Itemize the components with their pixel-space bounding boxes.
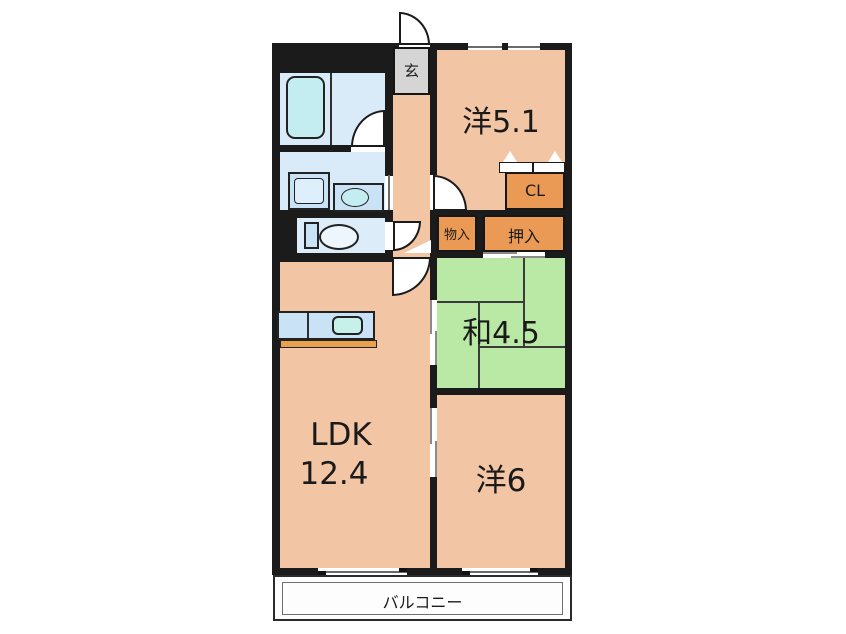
window-top-2: [508, 43, 540, 50]
window-yo6-balcony: [462, 568, 538, 575]
window-ldk-balcony: [318, 568, 407, 575]
fusuma-oshiire: [483, 252, 545, 258]
vanity-basin: [341, 188, 369, 207]
washroom-door-gap: [385, 176, 393, 210]
bathroom-divider: [330, 73, 332, 145]
genkan-label: 玄: [393, 60, 430, 81]
kitchen-counter-divider: [307, 313, 309, 338]
window-top-1: [468, 43, 502, 50]
yo51-label: 洋5.1: [437, 97, 565, 141]
oshiire-label: 押入: [483, 223, 565, 247]
storage-label: 物入: [437, 224, 477, 243]
kitchen-sink: [332, 316, 363, 335]
kitchen-base-cabinet: [280, 340, 377, 348]
folding-door-track: [499, 162, 565, 173]
ldk-label: LDK: [283, 417, 399, 453]
floor-plan: 玄 CL 物入 押入 バルコニー 洋5.1 和4.5 LDK 12.4 洋6: [0, 0, 846, 634]
ldk-room: [280, 262, 430, 568]
window-tick: [399, 568, 407, 572]
window-tick: [530, 568, 538, 572]
toilet-tank: [304, 222, 319, 249]
toilet-door-gap: [385, 222, 393, 250]
wall-right: [565, 43, 572, 575]
wa45-label: 和4.5: [437, 308, 565, 352]
toilet-bowl: [319, 224, 359, 250]
yo6-label: 洋6: [437, 455, 565, 500]
wall-left: [272, 43, 280, 575]
wall-below-wa45: [430, 388, 572, 395]
sliding-door-yo6: [430, 408, 437, 477]
wall-block-topleft: [272, 43, 393, 73]
ldk-size-label: 12.4: [278, 456, 390, 492]
wall-ldk-top: [272, 253, 393, 262]
washing-machine: [294, 178, 324, 204]
entrance-door-arc: [399, 12, 430, 45]
bathtub: [286, 76, 325, 139]
balcony-label: バルコニー: [273, 589, 572, 613]
closet-cl-label: CL: [505, 181, 565, 200]
fusuma-wa45: [430, 300, 437, 365]
tatami-line: [437, 301, 525, 303]
